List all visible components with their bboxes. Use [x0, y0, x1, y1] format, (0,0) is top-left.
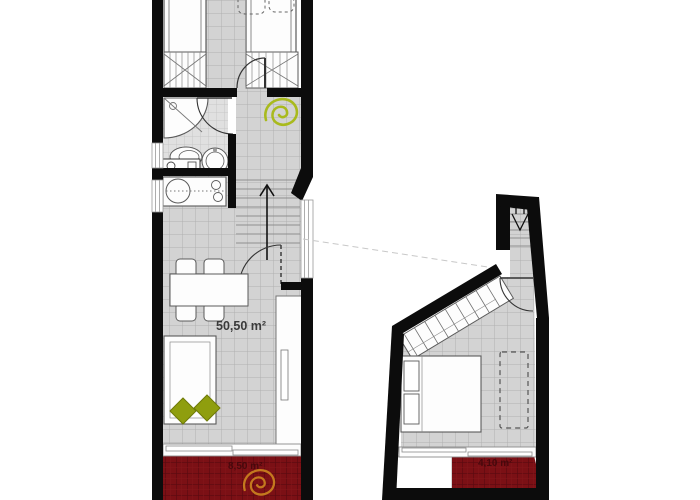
window-west-bathroom [152, 143, 163, 168]
pillow [404, 394, 419, 424]
right-unit: 4,10 m² [382, 194, 549, 500]
terrace-door-left [163, 444, 301, 456]
floor-plan-canvas: 50,50 m² 8,50 m² [0, 0, 700, 500]
dining-table [170, 274, 248, 306]
kitchen-counter [163, 177, 226, 206]
shower [164, 98, 208, 138]
terrace-left-floor [163, 452, 301, 500]
living-area-label: 50,50 m² [216, 319, 266, 333]
terrace-door-right [399, 447, 536, 457]
projection-dashed-line [303, 239, 494, 268]
wardrobe-column [276, 296, 302, 448]
bedroom-corridor-tiles [205, 0, 245, 88]
double-bed [401, 356, 481, 432]
sofa-bed [164, 336, 220, 424]
window-east-stairs [301, 200, 313, 278]
wardrobe-right [246, 52, 298, 88]
pillow [404, 361, 419, 391]
floor-plan-page: 50,50 m² 8,50 m² [0, 0, 700, 500]
left-unit: 50,50 m² 8,50 m² [152, 0, 313, 500]
terrace-right-label: 4,10 m² [478, 458, 513, 469]
wardrobe-left [164, 52, 206, 88]
window-west-kitchen [152, 180, 163, 212]
